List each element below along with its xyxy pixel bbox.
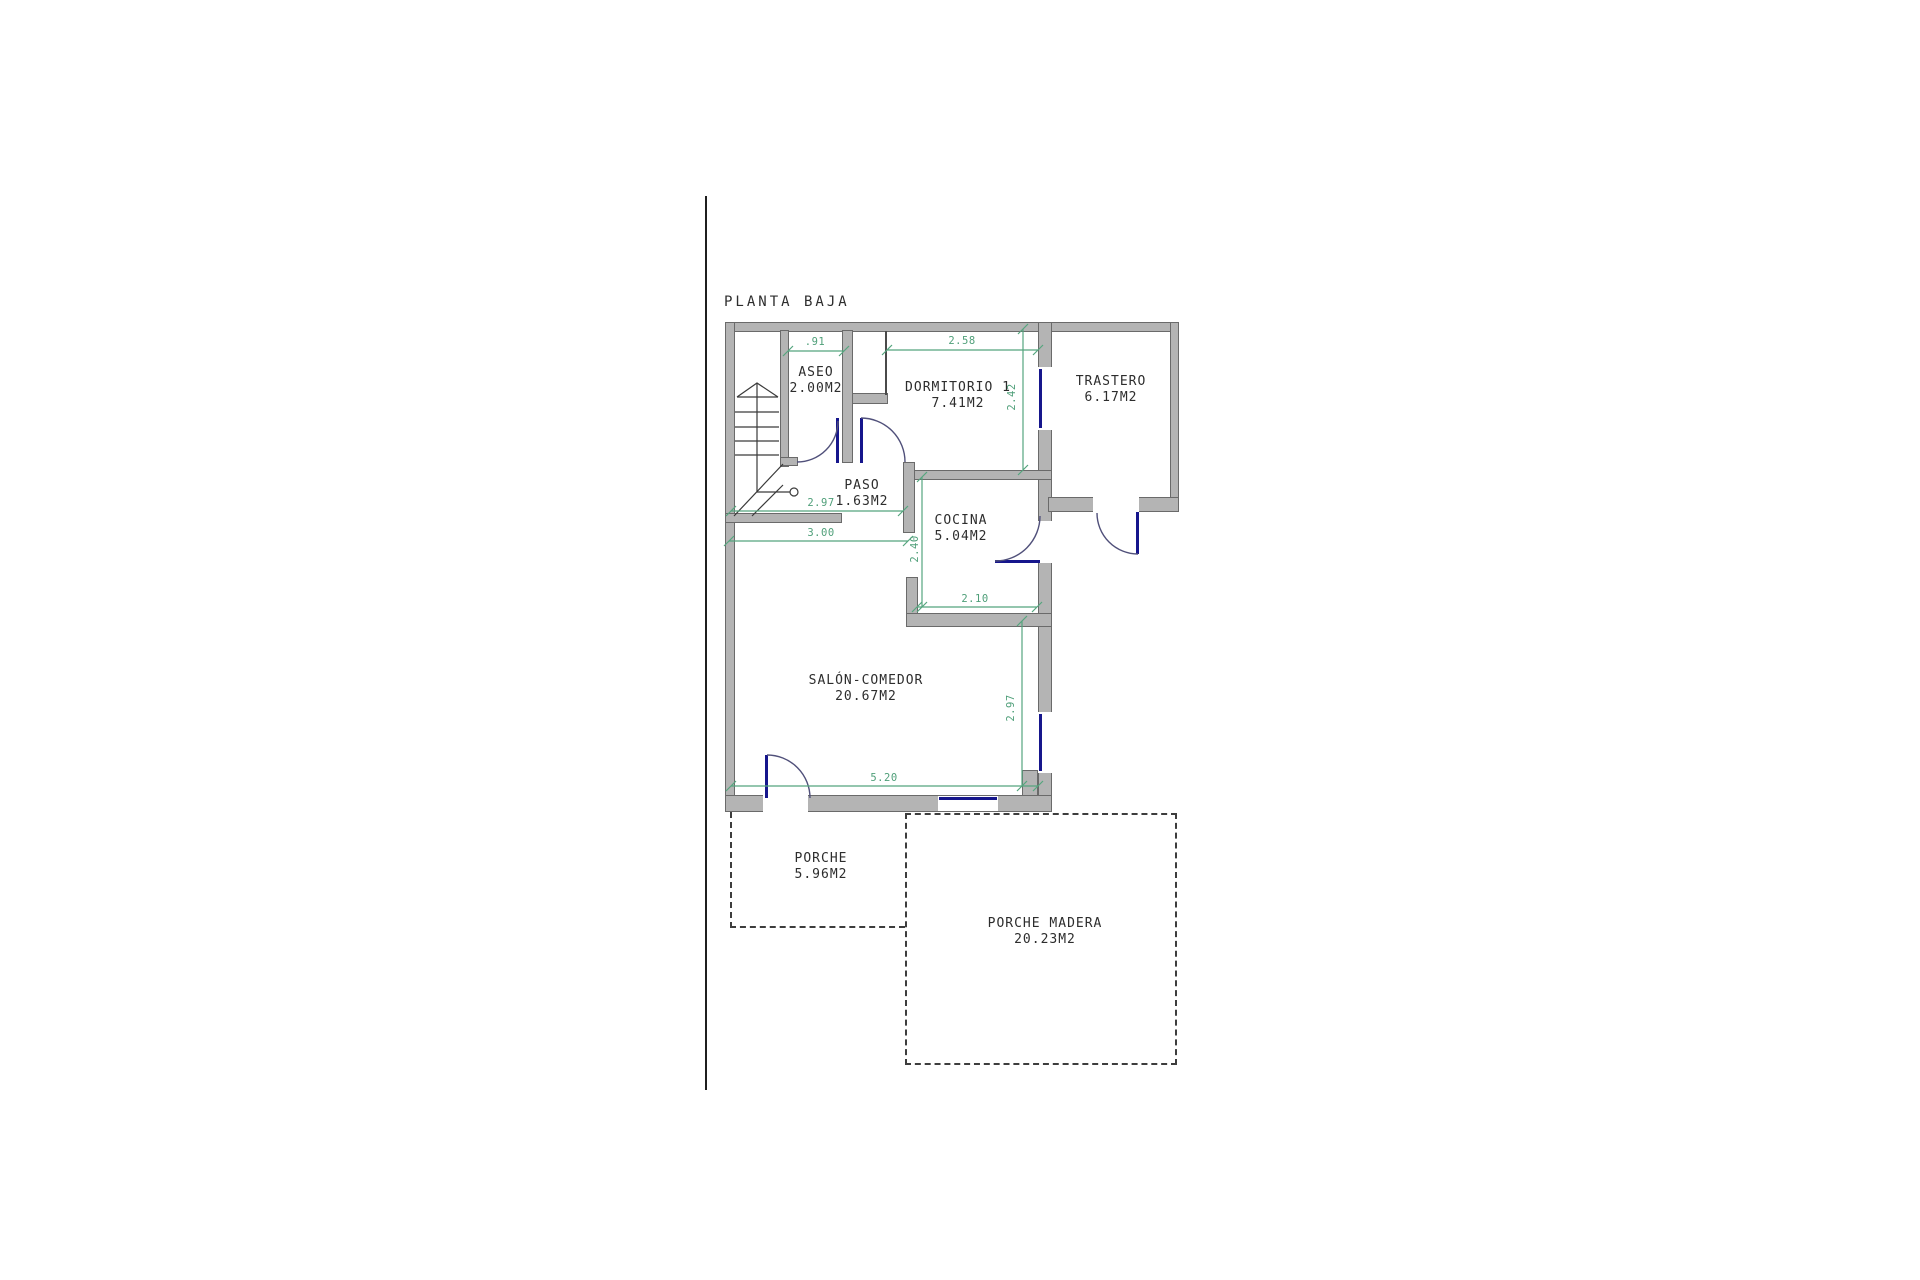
room-name: SALÓN-COMEDOR <box>809 673 924 689</box>
dim-label-aseo-width: .91 <box>805 336 825 348</box>
room-label-porche: PORCHE 5.96M2 <box>795 851 848 883</box>
wall-stairs-aseo <box>780 330 789 467</box>
room-area: 6.17M2 <box>1076 390 1147 406</box>
trastero-door-opening <box>1093 497 1139 512</box>
room-name: PORCHE MADERA <box>988 916 1103 932</box>
room-label-salon: SALÓN-COMEDOR 20.67M2 <box>809 673 924 705</box>
room-label-cocina: COCINA 5.04M2 <box>935 513 988 545</box>
stairs-direction-arrowhead <box>737 383 778 397</box>
trastero-door-arc <box>1097 513 1138 554</box>
salon-bottom-window-glass <box>939 797 997 800</box>
dim-label-salon-top-width: 3.00 <box>807 527 834 539</box>
room-name: PASO <box>836 478 889 494</box>
room-area: 5.04M2 <box>935 529 988 545</box>
room-label-porche-madera: PORCHE MADERA 20.23M2 <box>988 916 1103 948</box>
wall-trastero-right <box>1170 322 1179 512</box>
wall-corner-block <box>1022 770 1038 796</box>
room-area: 7.41M2 <box>905 396 1011 412</box>
room-area: 20.23M2 <box>988 932 1103 948</box>
wall-left <box>725 322 735 812</box>
cocina-ext-door-arc <box>995 516 1040 561</box>
dim-label-cocina-height: 2.40 <box>909 535 921 562</box>
aseo-door-arc <box>797 421 838 462</box>
room-area: 20.67M2 <box>809 689 924 705</box>
salon-entry-door-opening <box>763 795 808 812</box>
dim-label-salon-height: 2.97 <box>1005 694 1017 721</box>
stairs-start-circle <box>790 488 798 496</box>
room-label-trastero: TRASTERO 6.17M2 <box>1076 374 1147 406</box>
dorm-trastero-window-glass <box>1039 369 1042 428</box>
aseo-door-leaf <box>836 418 839 463</box>
wall-salon-paso-divider <box>725 513 842 523</box>
room-label-dormitorio: DORMITORIO 1 7.41M2 <box>905 380 1011 412</box>
cocina-ext-door-opening <box>1038 521 1052 563</box>
closet-edge-line <box>885 331 887 395</box>
trastero-door-leaf <box>1136 512 1139 554</box>
room-name: DORMITORIO 1 <box>905 380 1011 396</box>
wall-aseo-door-jamb <box>780 457 798 466</box>
dim-label-cocina-width: 2.10 <box>961 593 988 605</box>
floor-plan-canvas: PLANTA BAJA <box>0 0 1920 1280</box>
room-name: TRASTERO <box>1076 374 1147 390</box>
room-area: 2.00M2 <box>790 381 843 397</box>
salon-right-window-glass <box>1039 714 1042 771</box>
room-label-aseo: ASEO 2.00M2 <box>790 365 843 397</box>
dim-label-salon-bottom-width: 5.20 <box>870 772 897 784</box>
wall-closet-bottom <box>852 393 888 404</box>
dim-label-dormitorio-width: 2.58 <box>948 335 975 347</box>
wall-top <box>725 322 1179 332</box>
plan-linework <box>0 0 1920 1280</box>
room-name: PORCHE <box>795 851 848 867</box>
room-area: 5.96M2 <box>795 867 848 883</box>
cocina-ext-door-leaf <box>995 560 1040 563</box>
stairs-steps <box>735 412 779 455</box>
dim-label-paso-width: 2.97 <box>807 497 834 509</box>
salon-entry-door-arc <box>767 755 810 798</box>
wall-paso-cocina-pier <box>903 462 915 533</box>
salon-entry-door-leaf <box>765 755 768 798</box>
room-label-paso: PASO 1.63M2 <box>836 478 889 510</box>
wall-dormitorio-bottom <box>903 470 1052 480</box>
dim-line-dormitorio-height <box>1018 324 1028 475</box>
boundary-line <box>705 196 707 1090</box>
dim-line-salon-height <box>1017 616 1027 791</box>
room-area: 1.63M2 <box>836 494 889 510</box>
room-name: ASEO <box>790 365 843 381</box>
room-name: COCINA <box>935 513 988 529</box>
dormitorio-door-arc <box>861 418 905 462</box>
stairs-break-lines <box>734 464 783 516</box>
plan-title: PLANTA BAJA <box>724 294 850 310</box>
dormitorio-door-leaf <box>860 418 863 463</box>
wall-cocina-bottom <box>906 613 1052 627</box>
